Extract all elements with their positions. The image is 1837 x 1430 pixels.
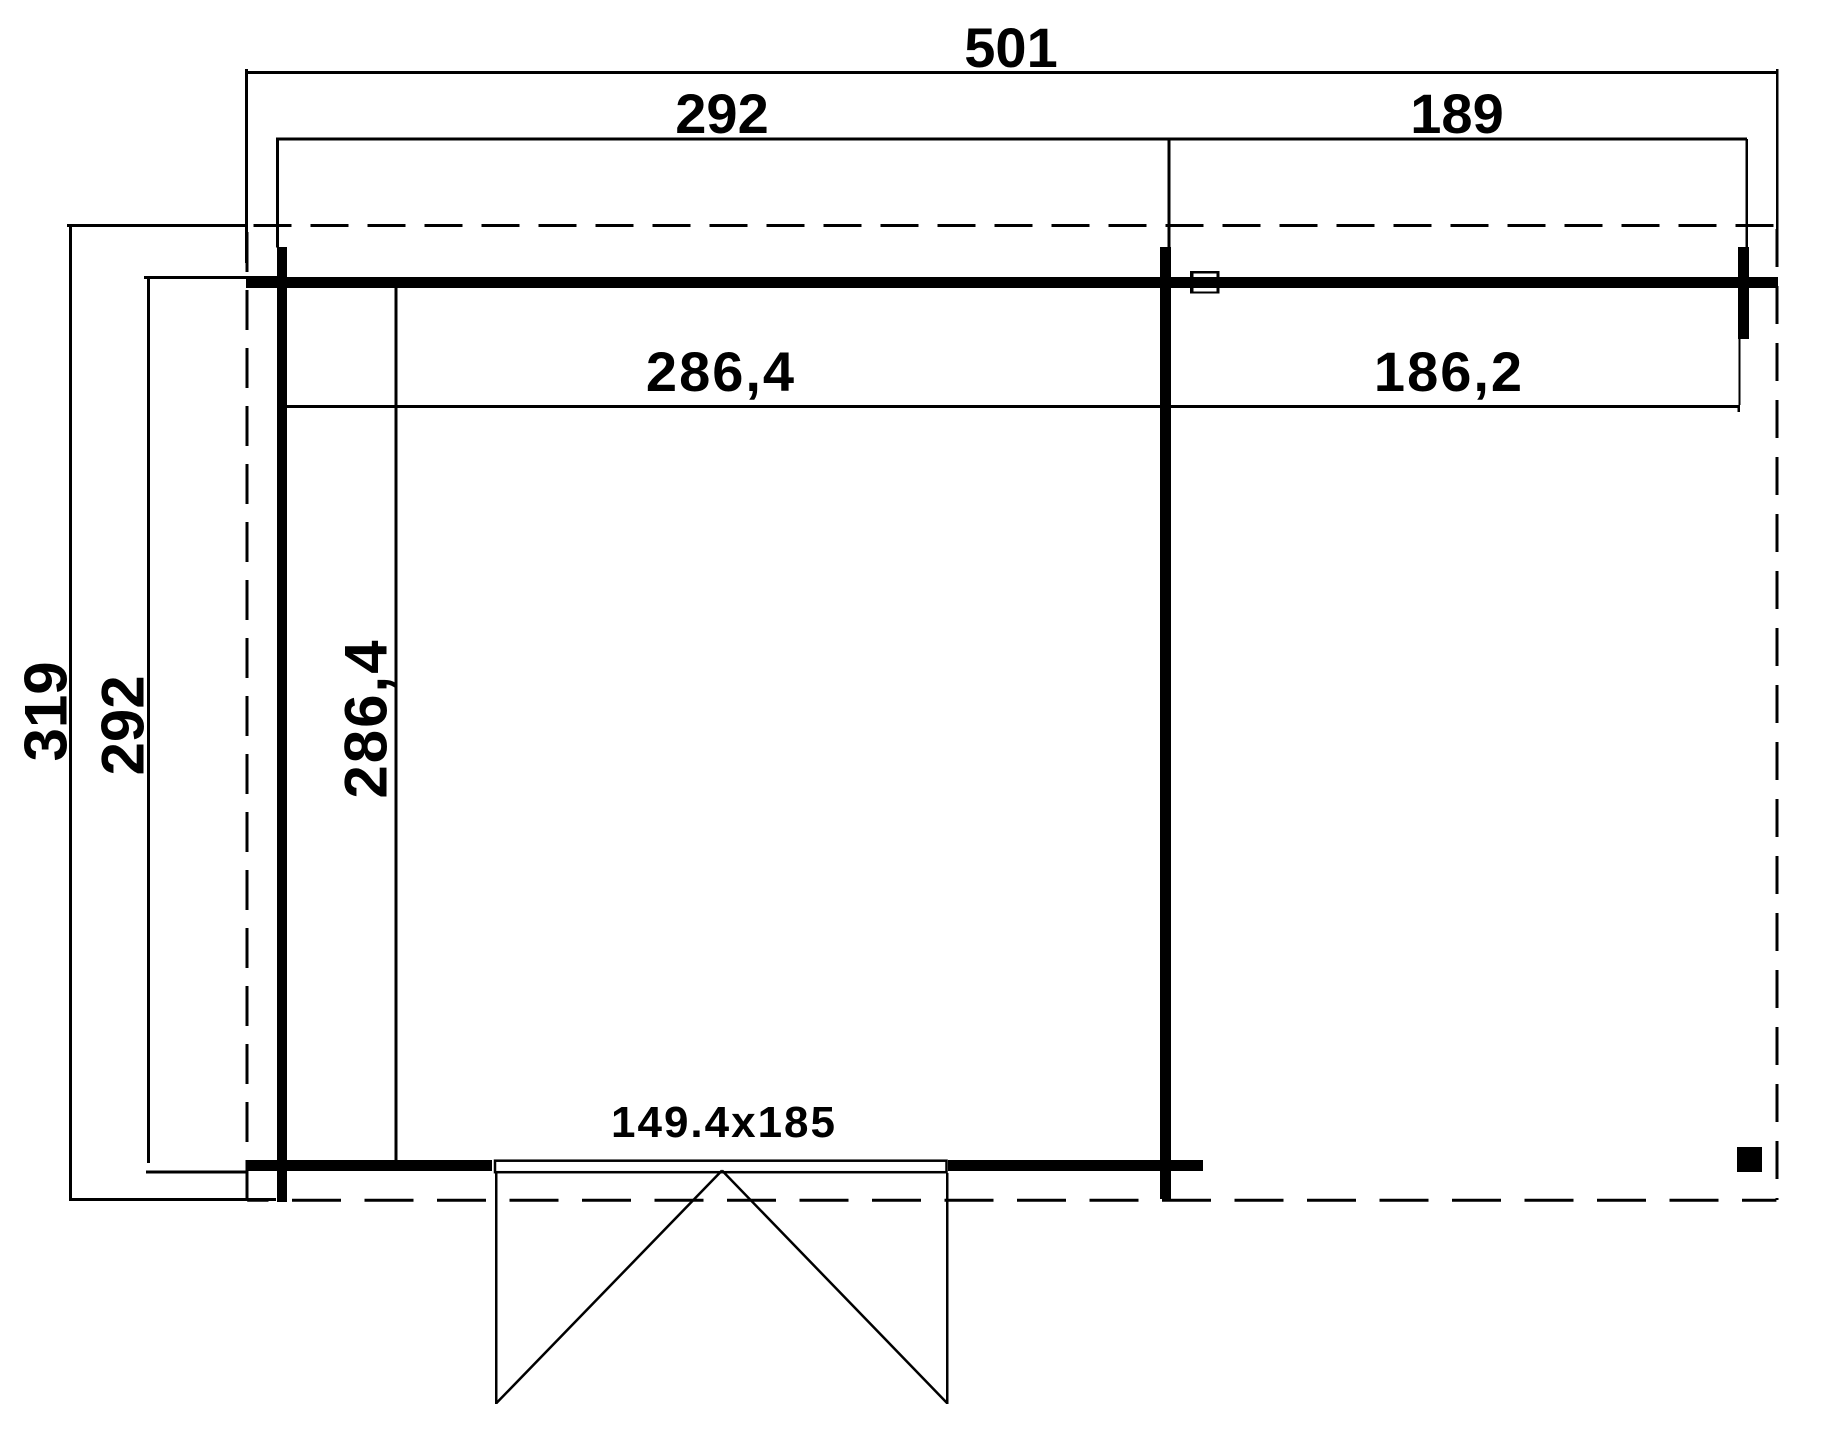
svg-text:292: 292: [675, 82, 768, 145]
svg-text:319: 319: [13, 661, 80, 761]
svg-text:501: 501: [964, 16, 1057, 79]
svg-text:186,2: 186,2: [1374, 340, 1524, 403]
svg-text:286,4: 286,4: [646, 340, 796, 403]
svg-text:292: 292: [90, 675, 157, 775]
svg-text:286,4: 286,4: [333, 638, 400, 798]
svg-text:189: 189: [1410, 82, 1503, 145]
svg-text:149.4x185: 149.4x185: [611, 1098, 837, 1147]
